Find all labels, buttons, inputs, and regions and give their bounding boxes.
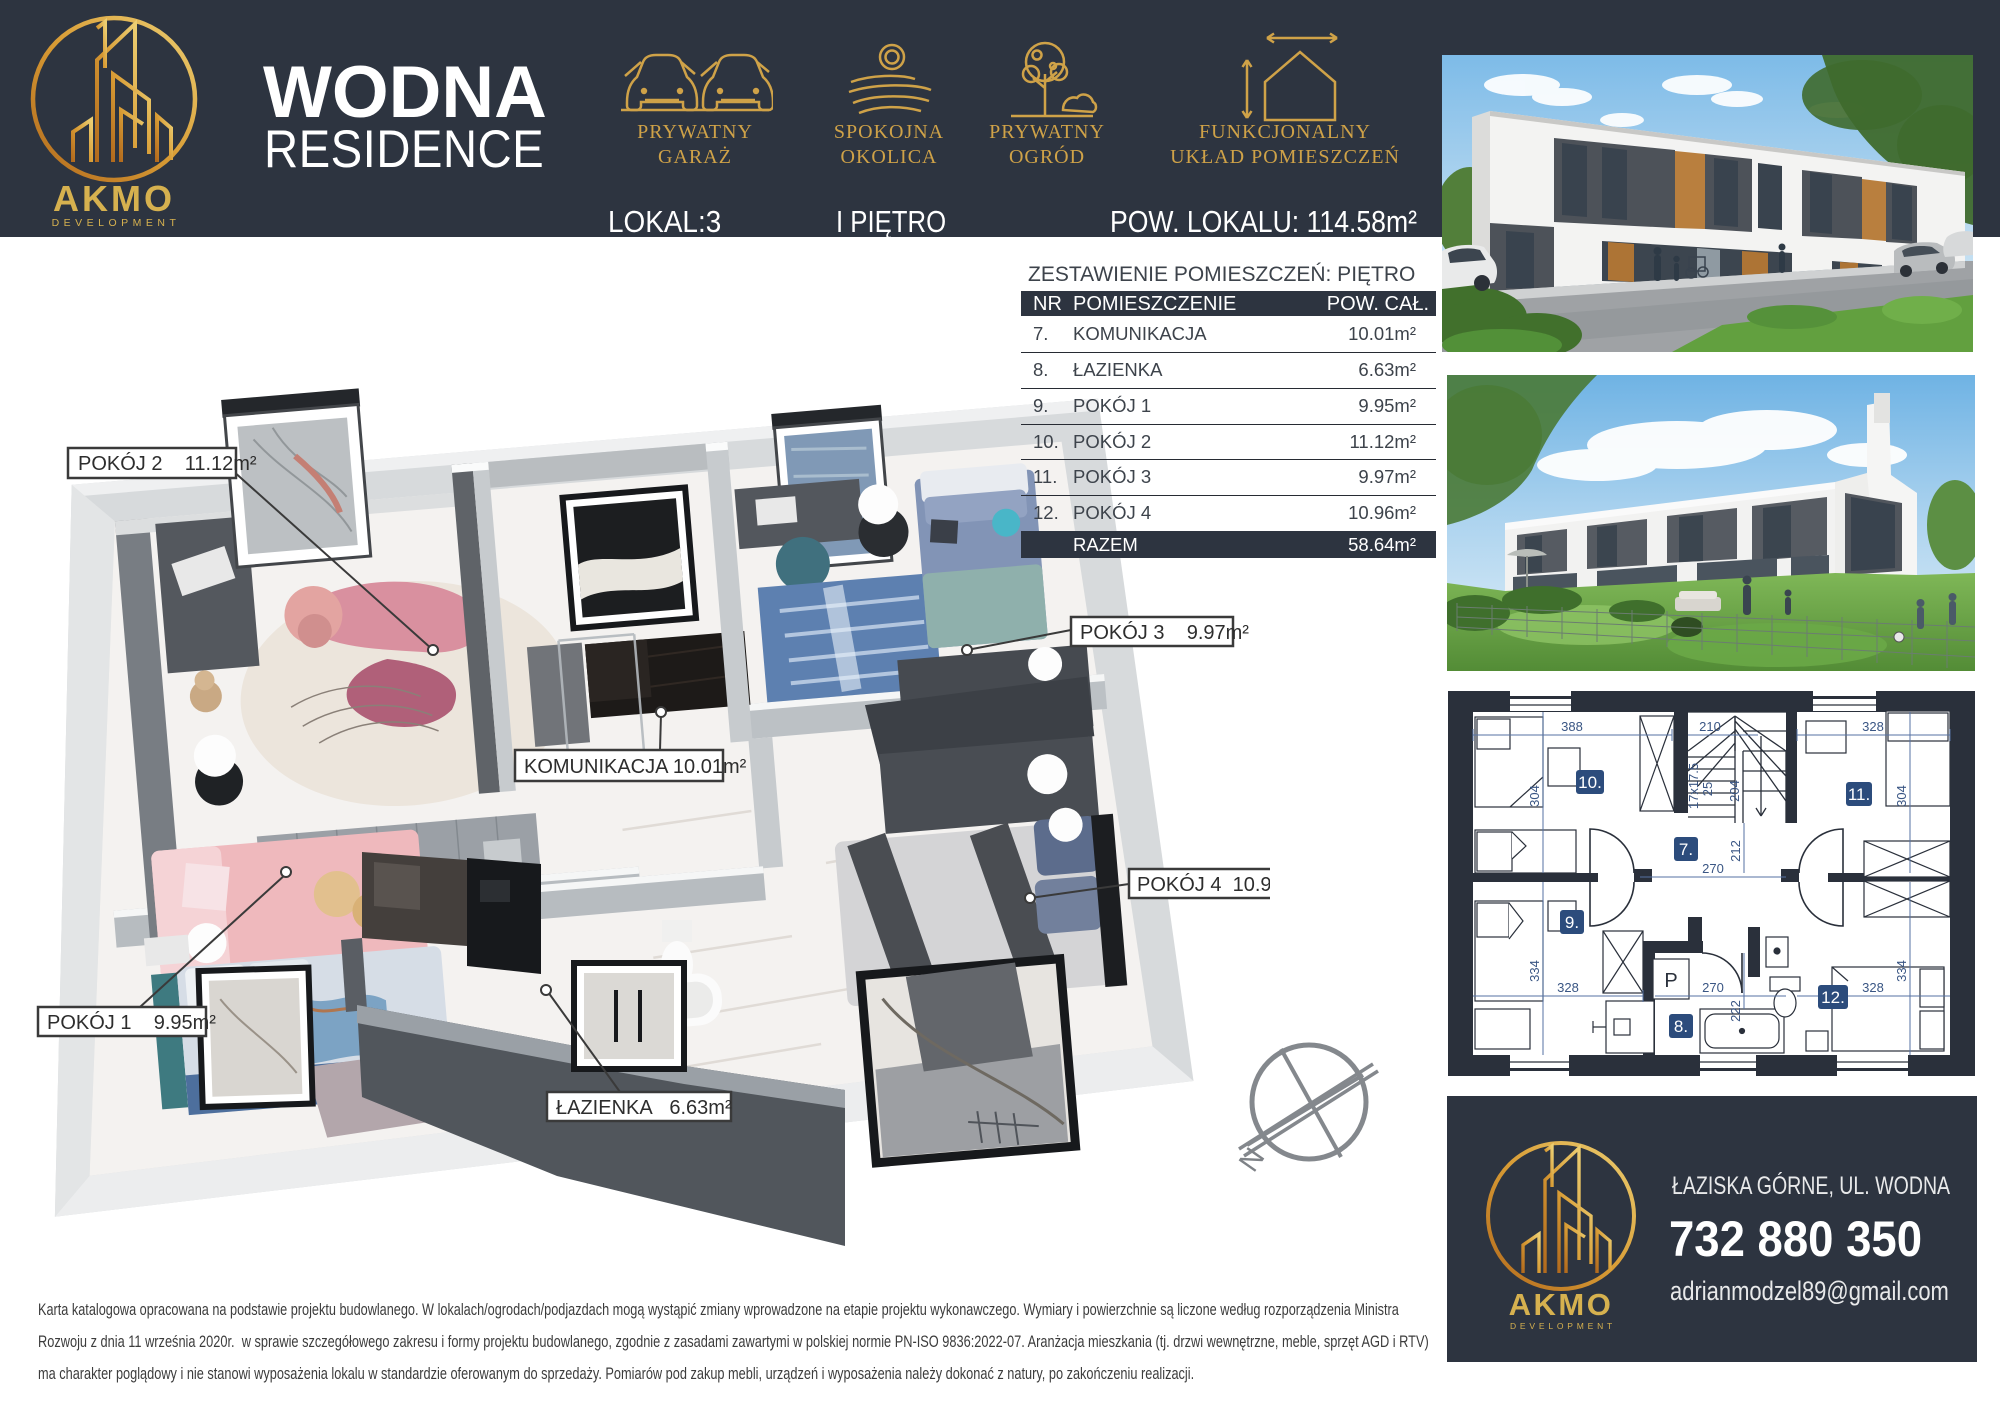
svg-text:POKÓJ 3 9.97m²: POKÓJ 3 9.97m² (1080, 621, 1249, 644)
svg-text:11.: 11. (1848, 785, 1870, 804)
svg-text:P: P (1664, 970, 1677, 992)
svg-text:25: 25 (1700, 782, 1715, 796)
svg-text:12.: 12. (1821, 988, 1845, 1007)
svg-text:388: 388 (1561, 719, 1583, 734)
svg-text:10.: 10. (1578, 773, 1602, 792)
svg-text:328: 328 (1862, 719, 1884, 734)
svg-text:POKÓJ 4 10.96m²: POKÓJ 4 10.96m² (1137, 873, 1270, 896)
svg-text:328: 328 (1557, 980, 1579, 995)
svg-text:334: 334 (1527, 960, 1542, 982)
svg-text:DEVELOPMENT: DEVELOPMENT (1510, 1321, 1616, 1331)
svg-text:222: 222 (1728, 1000, 1743, 1022)
svg-text:304: 304 (1527, 785, 1542, 807)
svg-text:POKÓJ 1 9.95m²: POKÓJ 1 9.95m² (47, 1011, 216, 1034)
svg-text:204: 204 (1727, 780, 1742, 802)
svg-text:9.: 9. (1565, 913, 1579, 932)
svg-text:POKÓJ 2 11.12m²: POKÓJ 2 11.12m² (78, 452, 257, 475)
svg-text:8.: 8. (1674, 1017, 1688, 1036)
svg-text:334: 334 (1894, 960, 1909, 982)
svg-text:212: 212 (1728, 840, 1743, 862)
svg-text:AKMO: AKMO (1509, 1287, 1614, 1322)
svg-text:304: 304 (1894, 785, 1909, 807)
svg-text:270: 270 (1702, 861, 1724, 876)
svg-text:DEVELOPMENT: DEVELOPMENT (52, 217, 181, 229)
svg-text:210: 210 (1699, 719, 1721, 734)
svg-text:270: 270 (1702, 980, 1724, 995)
svg-text:17x17.5: 17x17.5 (1686, 763, 1701, 809)
svg-text:7.: 7. (1679, 840, 1693, 859)
svg-text:328: 328 (1862, 980, 1884, 995)
svg-text:ŁAZIENKA 6.63m²: ŁAZIENKA 6.63m² (556, 1097, 732, 1119)
svg-text:KOMUNIKACJA 10.01m²: KOMUNIKACJA 10.01m² (524, 756, 747, 778)
svg-text:AKMO: AKMO (53, 178, 175, 219)
